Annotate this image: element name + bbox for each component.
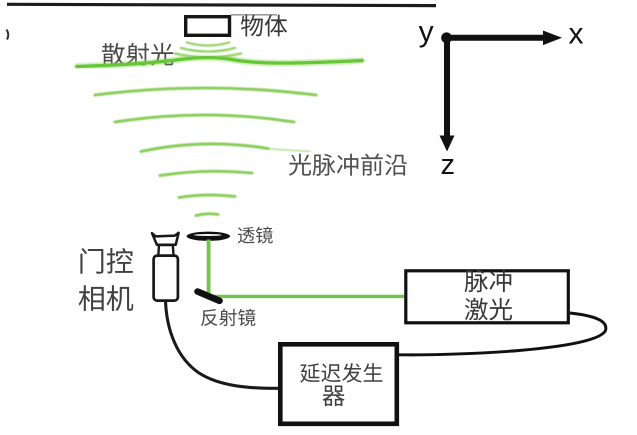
svg-text:z: z [441,149,456,181]
svg-text:y: y [419,16,434,49]
svg-text:x: x [569,18,584,51]
